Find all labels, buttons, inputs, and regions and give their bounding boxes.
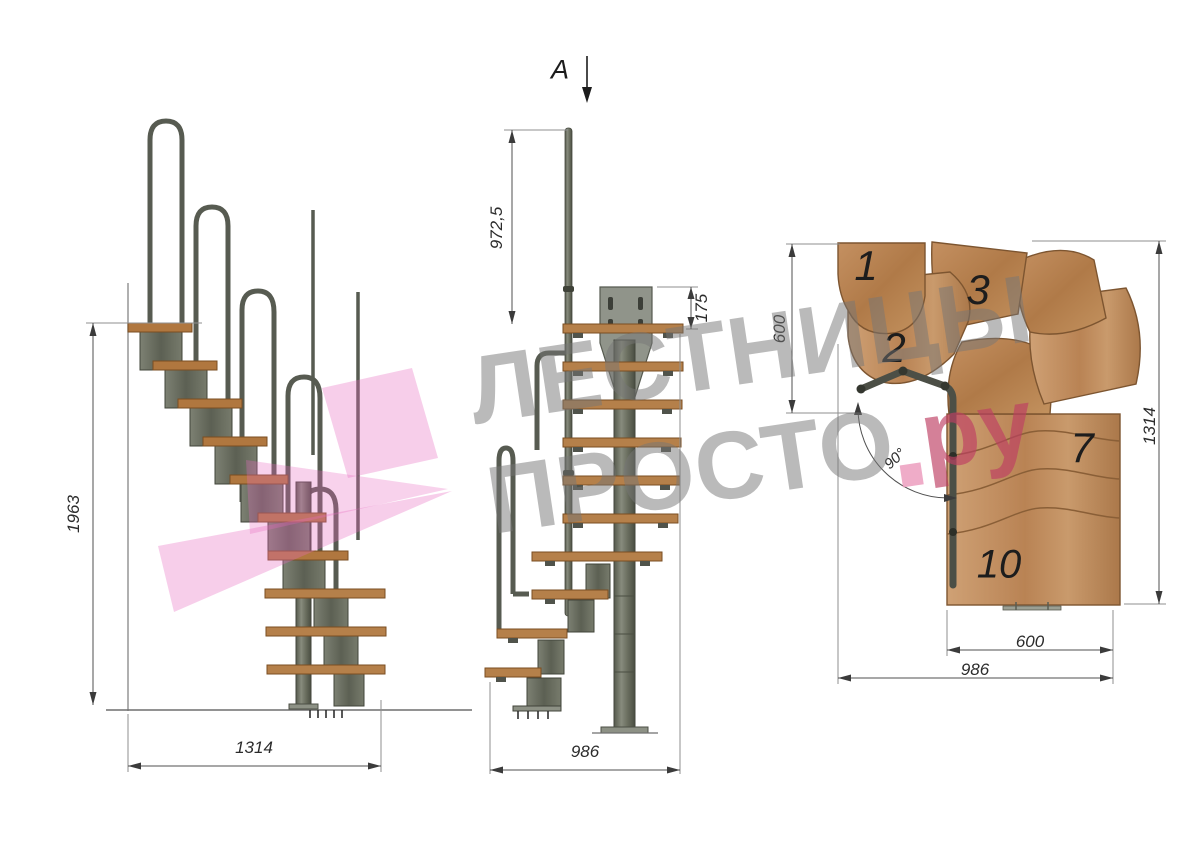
dim-plan-run-bottom: 600: [1016, 632, 1044, 652]
side-anchor-bolts: [310, 710, 342, 718]
step-number-3: 3: [966, 266, 989, 314]
side-column-base: [289, 704, 318, 709]
dim-front-handrail-height: 972,5: [487, 207, 507, 250]
dim-side-height: 1963: [64, 495, 84, 533]
post-joint: [563, 286, 574, 292]
step-number-7: 7: [1070, 424, 1093, 472]
dim-plan-run-top: 600: [770, 315, 790, 343]
dim-plan-width: 986: [961, 660, 989, 680]
dim-plan-depth: 1314: [1140, 407, 1160, 445]
front-central-column: [592, 340, 658, 733]
dim-front-plate-height: 175: [692, 294, 712, 322]
section-label: A: [551, 55, 569, 86]
dim-side-width: 1314: [235, 738, 273, 758]
post-joint: [563, 470, 574, 476]
front-elevation-view: [485, 56, 698, 774]
front-handrails: [499, 353, 566, 630]
step-number-1: 1: [854, 242, 877, 290]
dim-front-width: 986: [571, 742, 599, 762]
front-anchor-bolts: [518, 711, 548, 719]
front-corner-post: [565, 128, 572, 616]
step-number-2: 2: [882, 324, 905, 372]
step-number-10: 10: [977, 543, 1022, 588]
technical-drawing: [0, 0, 1200, 849]
plan-handrail: [857, 367, 958, 586]
staircase-drawing-canvas: A 1963 1314 972,5 175 986 600 1314 600 9…: [0, 0, 1200, 849]
section-arrow-icon: [582, 56, 592, 103]
